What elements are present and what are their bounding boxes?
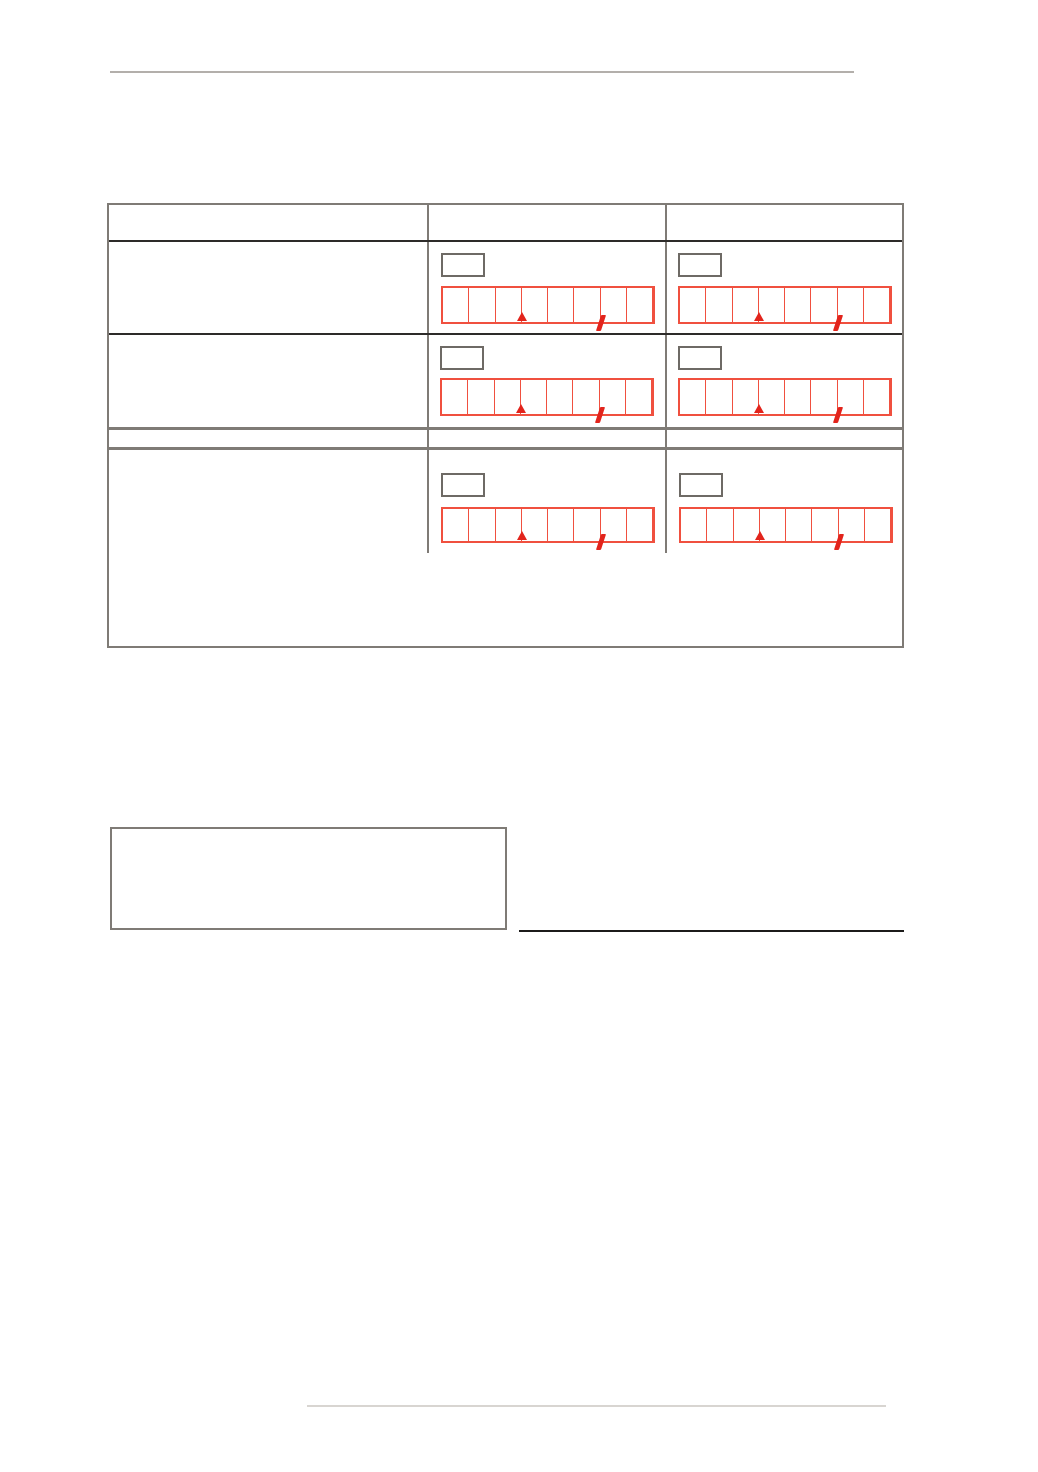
row2-row-divider (109, 427, 902, 430)
amount-digit-row[interactable] (441, 507, 655, 543)
bottom-divider-line (307, 1405, 886, 1407)
amount-digit-row[interactable] (678, 378, 892, 416)
digit-cell[interactable] (548, 509, 574, 541)
digit-cell[interactable] (811, 380, 837, 414)
amount-field-row2-col3 (678, 346, 894, 418)
amount-digit-row[interactable] (441, 286, 655, 324)
digit-cell[interactable] (785, 380, 811, 414)
digit-cell[interactable] (864, 288, 890, 322)
digit-cell[interactable] (547, 380, 573, 414)
amount-field-row2-col2 (440, 346, 656, 418)
field-code-box[interactable] (678, 253, 722, 277)
notes-box[interactable] (110, 827, 507, 930)
row1-label-cell (109, 242, 427, 333)
digit-cell[interactable] (443, 288, 469, 322)
amount-field-row1-col3 (678, 253, 894, 325)
digit-cell[interactable] (548, 288, 574, 322)
thousands-marker-icon (516, 404, 526, 413)
digit-cell[interactable] (681, 509, 707, 541)
thousands-marker-icon (517, 312, 527, 321)
digit-cell[interactable] (785, 288, 811, 322)
amount-field-row3-col2 (441, 473, 657, 545)
digit-cell[interactable] (627, 288, 653, 322)
digit-cell[interactable] (706, 380, 732, 414)
digit-cell[interactable] (468, 380, 494, 414)
top-divider-line (110, 71, 854, 73)
digit-cell[interactable] (865, 509, 891, 541)
header-cell-amount-1 (429, 205, 665, 240)
amount-field-row1-col2 (441, 253, 657, 325)
digit-cell[interactable] (442, 380, 468, 414)
digit-cell[interactable] (574, 509, 600, 541)
form-page (0, 0, 1038, 1472)
field-code-box[interactable] (441, 253, 485, 277)
row2-label-cell (109, 335, 427, 427)
digit-cell[interactable] (469, 288, 495, 322)
header-cell-description (109, 205, 427, 240)
thousands-marker-icon (755, 531, 765, 540)
amount-digit-row[interactable] (440, 378, 654, 416)
digit-cell[interactable] (573, 380, 599, 414)
digit-cell[interactable] (812, 509, 838, 541)
thousands-marker-icon (517, 531, 527, 540)
amount-digit-row[interactable] (678, 286, 892, 324)
field-code-box[interactable] (440, 346, 484, 370)
row3-label-cell (109, 450, 427, 646)
thousands-marker-icon (754, 312, 764, 321)
digit-cell[interactable] (811, 288, 837, 322)
field-code-box[interactable] (441, 473, 485, 497)
amount-field-row3-col3 (679, 473, 895, 545)
digit-cell[interactable] (680, 380, 706, 414)
field-code-box[interactable] (678, 346, 722, 370)
digit-cell[interactable] (706, 288, 732, 322)
signature-line (519, 930, 904, 932)
header-cell-amount-2 (667, 205, 902, 240)
digit-cell[interactable] (626, 380, 652, 414)
digit-cell[interactable] (574, 288, 600, 322)
table-column-divider-1 (427, 205, 429, 553)
digit-cell[interactable] (627, 509, 653, 541)
digit-cell[interactable] (469, 509, 495, 541)
thousands-marker-icon (754, 404, 764, 413)
digit-cell[interactable] (786, 509, 812, 541)
digit-cell[interactable] (864, 380, 890, 414)
digit-cell[interactable] (680, 288, 706, 322)
amount-digit-row[interactable] (679, 507, 893, 543)
digit-cell[interactable] (707, 509, 733, 541)
table-column-divider-2 (665, 205, 667, 553)
field-code-box[interactable] (679, 473, 723, 497)
digit-cell[interactable] (443, 509, 469, 541)
